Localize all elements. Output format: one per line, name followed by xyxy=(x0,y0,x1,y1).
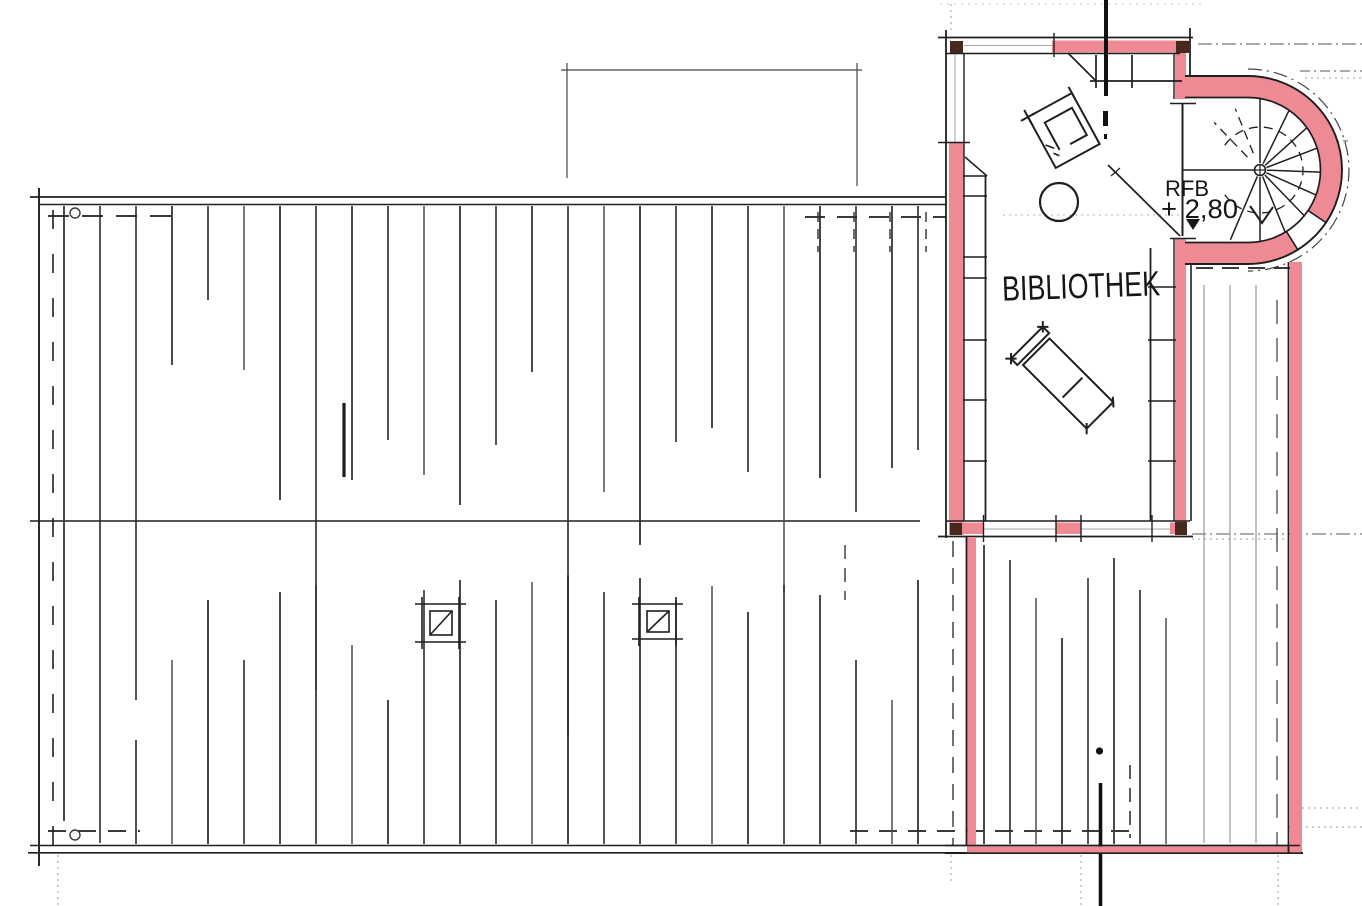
svg-text:BIBLIOTHEK: BIBLIOTHEK xyxy=(1001,264,1160,308)
